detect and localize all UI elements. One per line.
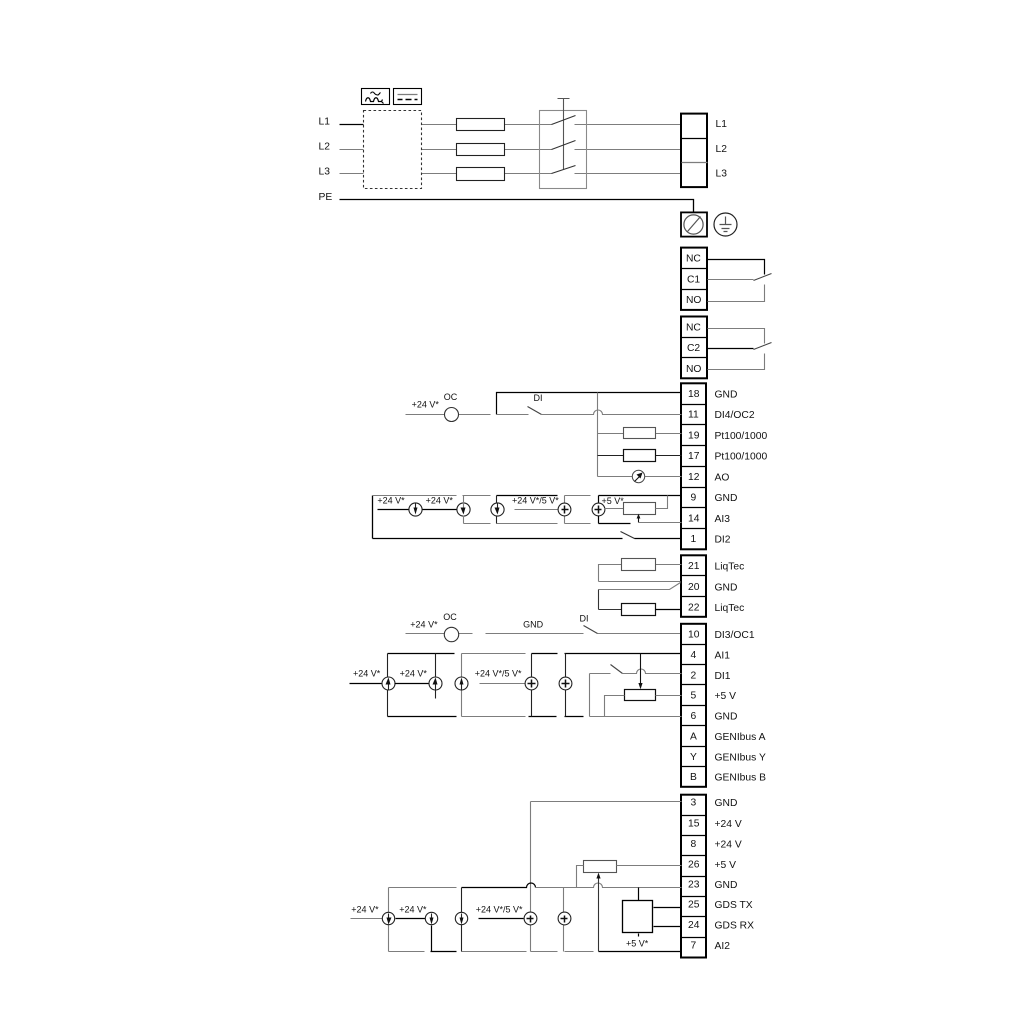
- svg-text:26: 26: [688, 859, 700, 870]
- svg-text:+5 V: +5 V: [715, 691, 737, 702]
- svg-text:DI: DI: [534, 393, 543, 403]
- svg-text:12: 12: [688, 472, 700, 483]
- svg-text:9: 9: [691, 493, 697, 504]
- svg-text:B: B: [690, 772, 697, 783]
- svg-text:5: 5: [691, 691, 697, 702]
- svg-text:18: 18: [688, 389, 700, 400]
- svg-text:GND: GND: [715, 712, 738, 723]
- svg-text:+5 V: +5 V: [715, 860, 737, 871]
- svg-text:+24 V*: +24 V*: [410, 620, 438, 630]
- svg-text:OC: OC: [444, 392, 458, 402]
- svg-text:LiqTec: LiqTec: [715, 603, 745, 614]
- svg-text:Pt100/1000: Pt100/1000: [715, 431, 768, 442]
- svg-text:GDS RX: GDS RX: [715, 921, 755, 932]
- svg-text:17: 17: [688, 451, 700, 462]
- svg-text:AI3: AI3: [715, 514, 731, 525]
- svg-text:4: 4: [691, 650, 697, 661]
- svg-text:20: 20: [688, 582, 700, 593]
- svg-text:L3: L3: [716, 168, 728, 179]
- svg-text:7: 7: [691, 940, 697, 951]
- svg-text:GENIbus Y: GENIbus Y: [715, 752, 766, 763]
- svg-text:+24 V*: +24 V*: [351, 905, 379, 915]
- svg-text:DI3/OC1: DI3/OC1: [715, 630, 755, 641]
- svg-text:LiqTec: LiqTec: [715, 562, 745, 573]
- svg-text:A: A: [690, 731, 697, 742]
- svg-text:NO: NO: [686, 364, 701, 375]
- svg-text:GND: GND: [715, 880, 738, 891]
- svg-text:Y: Y: [690, 752, 697, 763]
- svg-text:+24 V: +24 V: [715, 840, 742, 851]
- svg-text:L1: L1: [319, 117, 331, 128]
- svg-text:AI2: AI2: [715, 941, 731, 952]
- svg-text:10: 10: [688, 630, 700, 641]
- svg-text:19: 19: [688, 430, 700, 441]
- svg-text:L2: L2: [319, 142, 331, 153]
- svg-text:+24 V: +24 V: [715, 819, 742, 830]
- svg-text:14: 14: [688, 513, 700, 524]
- svg-text:2: 2: [691, 670, 697, 681]
- svg-text:DI1: DI1: [715, 671, 731, 682]
- svg-text:NO: NO: [686, 295, 701, 306]
- svg-text:22: 22: [688, 603, 700, 614]
- svg-text:+24 V*/5 V*: +24 V*/5 V*: [475, 669, 522, 679]
- svg-text:GENIbus B: GENIbus B: [715, 773, 767, 784]
- svg-text:3: 3: [691, 798, 697, 809]
- svg-text:+24 V*: +24 V*: [412, 399, 440, 409]
- svg-text:AO: AO: [715, 472, 730, 483]
- svg-text:AI1: AI1: [715, 651, 731, 662]
- svg-text:+24 V*: +24 V*: [377, 496, 405, 506]
- svg-text:GND: GND: [715, 582, 738, 593]
- svg-text:C1: C1: [687, 274, 700, 285]
- svg-text:+24 V*: +24 V*: [353, 669, 381, 679]
- svg-text:GND: GND: [715, 389, 738, 400]
- svg-text:+24 V*/5 V*: +24 V*/5 V*: [476, 905, 523, 915]
- svg-text:Pt100/1000: Pt100/1000: [715, 452, 768, 463]
- svg-text:PE: PE: [319, 192, 333, 203]
- svg-text:GENIbus A: GENIbus A: [715, 732, 766, 743]
- svg-text:24: 24: [688, 920, 700, 931]
- svg-text:11: 11: [688, 410, 699, 421]
- svg-text:DI: DI: [580, 614, 589, 624]
- svg-text:8: 8: [691, 839, 697, 850]
- svg-text:+24 V*/5 V*: +24 V*/5 V*: [512, 496, 559, 506]
- svg-text:OC: OC: [443, 612, 457, 622]
- svg-text:+24 V*: +24 V*: [399, 905, 427, 915]
- svg-text:+5 V*: +5 V*: [602, 496, 625, 506]
- svg-text:GND: GND: [715, 798, 738, 809]
- svg-text:+24 V*: +24 V*: [400, 669, 428, 679]
- svg-text:DI2: DI2: [715, 535, 731, 546]
- svg-text:+24 V*: +24 V*: [426, 496, 454, 506]
- svg-text:23: 23: [688, 880, 700, 891]
- svg-text:NC: NC: [686, 254, 701, 265]
- svg-text:GND: GND: [523, 619, 544, 629]
- svg-text:C2: C2: [687, 343, 700, 354]
- svg-text:25: 25: [688, 900, 700, 911]
- svg-text:L3: L3: [319, 167, 331, 178]
- svg-text:NC: NC: [686, 322, 701, 333]
- svg-text:GND: GND: [715, 493, 738, 504]
- svg-text:DI4/OC2: DI4/OC2: [715, 410, 755, 421]
- svg-text:L2: L2: [716, 144, 728, 155]
- svg-text:1: 1: [691, 534, 697, 545]
- svg-text:GDS TX: GDS TX: [715, 900, 753, 911]
- svg-text:15: 15: [688, 819, 700, 830]
- svg-text:L1: L1: [716, 119, 728, 130]
- svg-text:21: 21: [688, 561, 700, 572]
- svg-text:+5 V*: +5 V*: [626, 939, 649, 949]
- svg-text:6: 6: [691, 711, 697, 722]
